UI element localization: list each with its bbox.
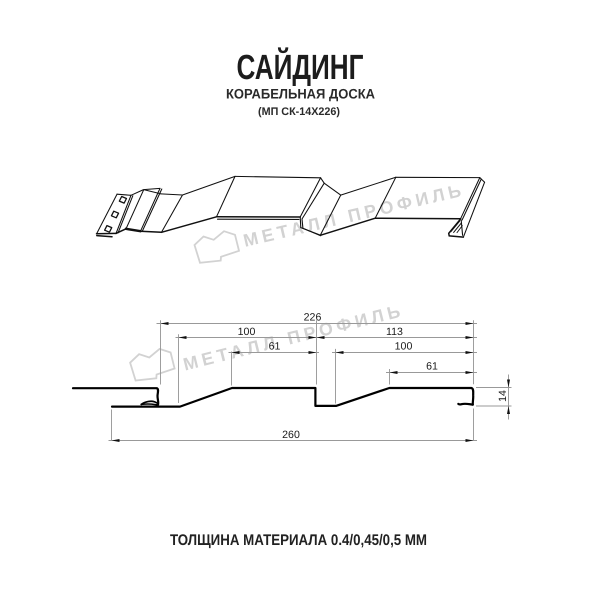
svg-text:226: 226 <box>304 312 322 324</box>
svg-text:61: 61 <box>426 361 438 373</box>
svg-text:61: 61 <box>269 340 281 352</box>
svg-text:14: 14 <box>497 390 509 402</box>
svg-text:КОРАБЕЛЬНАЯ ДОСКА: КОРАБЕЛЬНАЯ ДОСКА <box>226 86 375 101</box>
svg-text:100: 100 <box>395 340 413 352</box>
svg-text:100: 100 <box>238 326 256 338</box>
svg-text:САЙДИНГ: САЙДИНГ <box>237 47 364 87</box>
svg-text:260: 260 <box>282 429 300 441</box>
svg-text:113: 113 <box>386 326 403 338</box>
svg-text:ТОЛЩИНА МАТЕРИАЛА 0.4/0,45/0,5: ТОЛЩИНА МАТЕРИАЛА 0.4/0,45/0,5 ММ <box>170 532 427 549</box>
svg-text:(МП СК-14Х226): (МП СК-14Х226) <box>258 106 340 118</box>
